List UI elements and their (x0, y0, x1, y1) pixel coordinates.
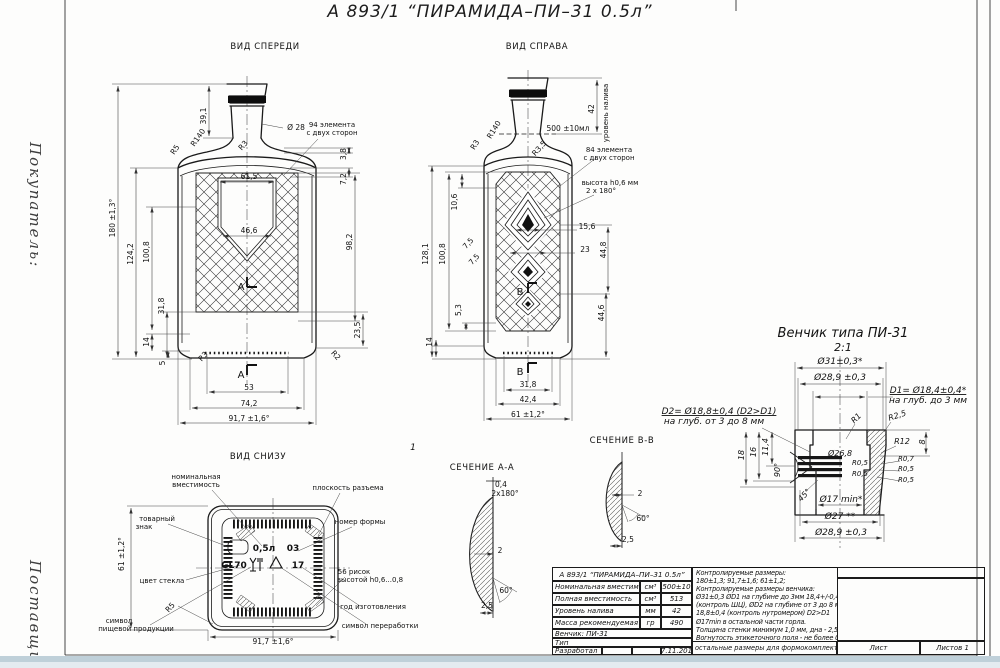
dim-label: 7,5 (461, 236, 476, 251)
dim-label: R2 (329, 349, 343, 363)
dim-label: 2,5 (481, 601, 493, 610)
dim-label: 3,8 (339, 148, 348, 160)
dim-label: R2,5 (887, 409, 907, 423)
dim-label: R5 (168, 143, 181, 157)
dim-label: 45° (796, 487, 812, 503)
dim-label: GL70 (221, 561, 247, 571)
spec-value: 490 (661, 617, 692, 629)
dim-label: с двух сторон (306, 129, 357, 137)
section-b: СЕЧЕНИЕ В-В 260°2,5 (590, 436, 655, 548)
dim-label: B (517, 287, 524, 298)
dim-label: с двух сторон (583, 154, 634, 162)
front-view: ВИД СПЕРЕДИ (108, 42, 368, 425)
finish-title: Венчик типа ПИ-31 (778, 326, 909, 341)
dim-label: 2x180° (491, 489, 519, 498)
dim-label: 31,8 (520, 380, 537, 389)
note-line: (контроль ШЦ), ØD2 на глубине от 3 до 8 … (696, 601, 837, 609)
developed-by-label: Разработал (552, 647, 602, 655)
dim-label: 31,8 (157, 297, 166, 314)
note-line: Контролируемые размеры: (696, 569, 837, 577)
drawing-sheet: А 893/1 “ПИРАМИДА–ПИ–31 0.5л” Покупатель… (0, 0, 1000, 668)
wall-section (606, 462, 622, 541)
empty-cell (837, 567, 985, 578)
knurl-band-right (314, 535, 323, 599)
dim-label: 2 (498, 546, 503, 555)
spec-unit: гр (640, 617, 661, 629)
dim-label: 0,5л (253, 544, 276, 554)
dim-label: 39,1 (199, 107, 208, 124)
dim-label: 61 ±1,2° (117, 537, 126, 571)
annotations: 1 (410, 443, 416, 453)
spec-unit: мм (640, 605, 661, 617)
dim-label: 42,4 (520, 395, 537, 404)
scan-edge-strip (0, 662, 1000, 668)
annotations: Ø31±0,3*Ø28,9 ±0,3D1= Ø18,4±0,4*на глуб.… (662, 356, 968, 538)
dim-label: 128,1 (421, 243, 430, 265)
dim-label: 8 (918, 439, 927, 444)
spec-value: 42 (661, 605, 692, 617)
dim-label: 42 (587, 104, 596, 114)
note-line: Ø17min в остальной части горла. (696, 618, 837, 626)
dim-label: товарный (139, 515, 175, 523)
dim-label: 18 (737, 450, 746, 460)
note-line: Ø31±0,3 ØD1 на глубине до 3мм 18,4+/-0,4 (696, 593, 837, 601)
dim-label: 84 элемента (586, 146, 632, 154)
dim-label: 56 рисок (338, 568, 370, 576)
dim-label: A (238, 282, 245, 293)
note-line: 18,8±0,4 (контроль нутромером) D2>D1 (696, 609, 837, 617)
dim-label: 23,5 (353, 321, 362, 338)
dim-label: 14 (142, 337, 151, 347)
dim-label: 91,7 ±1,6° (252, 637, 293, 646)
dim-label: Ø28,9 ±0,3 (813, 372, 866, 383)
signature-cell (632, 647, 661, 655)
dim-label: R12 (894, 437, 910, 446)
recycle-symbol (270, 557, 282, 568)
dim-label: год изготовления (340, 603, 406, 611)
dim-label: A (238, 370, 245, 381)
spec-unit: см³ (640, 593, 661, 605)
note-line: Толщина стенки минимум 1,0 мм, дна - 2,5… (696, 626, 837, 634)
dim-label: 5 (158, 360, 167, 365)
food-contact-symbol (250, 558, 262, 571)
dim-label: R3,5 (530, 139, 548, 158)
dim-label: 2 (638, 489, 643, 498)
dim-label: 90° (773, 463, 782, 477)
spec-value: 513 (661, 593, 692, 605)
dim-label: 1 (410, 443, 416, 453)
dim-label: 91,7 ±1,6° (228, 414, 269, 423)
empty-cell (837, 578, 985, 641)
right-view: ВИД СПРАВА (421, 42, 638, 421)
spec-name: Уровень налива (552, 605, 640, 617)
dim-label: цвет стекла (140, 577, 185, 585)
dim-label: R0,7 (898, 455, 915, 463)
spec-unit: см³ (640, 581, 661, 593)
dim-label: 44,6 (597, 304, 606, 321)
dim-label: 94 элемента (309, 121, 355, 129)
dim-label: R140 (485, 119, 503, 141)
dim-label: 60° (499, 586, 513, 595)
finish-detail: Венчик типа ПИ-31 2:1 (662, 326, 968, 548)
dim-label: 60° (636, 514, 650, 523)
dim-label: плоскость разъема (312, 484, 383, 492)
dim-label: 100,8 (438, 243, 447, 265)
dim-label: на глуб. до 3 мм (889, 396, 967, 406)
dim-label: 180 ±1,3° (108, 198, 117, 237)
dim-label: 23 (580, 245, 590, 254)
sheets-count-label: Листов 1 (920, 641, 985, 655)
spec-name: Полная вместимость (552, 593, 640, 605)
dim-label: 11,4 (761, 438, 770, 456)
dim-label: 0,4 (495, 480, 507, 489)
date-cell: 17.11.2017 (661, 647, 692, 655)
dim-label: 2 x 180° (586, 187, 616, 195)
dim-label: R3 (468, 138, 481, 151)
dim-label: номинальная (171, 473, 220, 481)
dim-label: R0,5 (852, 459, 869, 467)
dim-label: 61 ±1,2° (511, 410, 545, 419)
dim-label: Ø17 min* (819, 494, 863, 505)
dim-label: 53 (244, 383, 254, 392)
view-title-section-b: СЕЧЕНИЕ В-В (590, 436, 655, 446)
dim-label: знак (136, 523, 153, 531)
view-title-right: ВИД СПРАВА (506, 42, 568, 52)
dim-label: 7,2 (339, 173, 348, 185)
dim-label: R3 (236, 138, 250, 152)
dim-label: 15,6 (579, 222, 596, 231)
dim-label: номер формы (335, 518, 386, 526)
dim-label: Ø28,9 ±0,3 (814, 527, 867, 538)
dim-label: R1 (849, 411, 863, 425)
dim-label: символ переработки (342, 622, 419, 630)
dim-label: R3 (196, 349, 210, 363)
control-notes: Контролируемые размеры: 180±1,3; 91,7±1,… (692, 567, 837, 641)
dim-label: B (517, 367, 524, 378)
finish-scale: 2:1 (834, 341, 852, 354)
dim-label: высота h0,6 мм (582, 179, 639, 187)
type-row: Тип (552, 638, 692, 647)
dim-label: Ø26,8 (827, 448, 852, 458)
view-title-section-a: СЕЧЕНИЕ А-А (450, 463, 515, 473)
knurl-band-bottom (233, 608, 313, 617)
note-footer: остальные размеры для формокомплекта (692, 641, 837, 655)
dim-label: 16 (749, 447, 758, 457)
dim-label: R0,5 (852, 470, 869, 478)
dim-label: вместимость (172, 481, 220, 489)
dim-label: 500 ±10мл (547, 124, 590, 133)
dim-label: пищевой продукции (98, 625, 174, 633)
dim-label: 03 (287, 544, 300, 554)
dim-label: D1= Ø18,4±0,4* (890, 385, 967, 396)
dim-label: Ø31±0,3* (817, 356, 863, 367)
dim-label: R0,5 (898, 465, 915, 473)
misc-marks: 1 (410, 443, 416, 453)
cap-band (509, 90, 547, 97)
title-block-header: А 893/1 “ПИРАМИДА–ПИ–31 0.5л” (552, 567, 692, 581)
dim-label: 61,5 (241, 172, 258, 181)
dim-label: R140 (189, 127, 208, 148)
dim-label: высотой h0,6...0,8 (337, 576, 403, 584)
signature-cell (602, 647, 632, 655)
dim-label: 5,3 (454, 304, 463, 316)
dim-label: 44,8 (599, 241, 608, 258)
dim-label: D2= Ø18,8±0,4 (D2>D1) (662, 406, 777, 417)
dim-label: 10,6 (450, 193, 459, 210)
sheet-label: Лист (837, 641, 920, 655)
dim-label: Ø 28 (287, 123, 305, 132)
cap-band (228, 96, 266, 103)
dim-label: Ø27 ** (824, 511, 856, 522)
dim-label: символ (106, 617, 133, 625)
note-line: Вогнутость этикеточного поля - не более … (696, 634, 837, 641)
finish-type-row: Венчик: ПИ-31 (552, 629, 692, 638)
view-title-bottom: ВИД СНИЗУ (230, 452, 286, 462)
dim-label: 98,2 (345, 233, 354, 250)
view-title-front: ВИД СПЕРЕДИ (230, 42, 299, 52)
note-line: Контролируемые размеры венчика: (696, 585, 837, 593)
dim-label: 100,8 (142, 241, 151, 263)
dim-label: 124,2 (126, 243, 135, 265)
thread-band (798, 456, 842, 477)
dim-label: 74,2 (241, 399, 258, 408)
dim-label: уровень налива (602, 84, 610, 143)
dim-label: 17 (292, 561, 305, 571)
spec-name: Масса рекомендуемая (552, 617, 640, 629)
spec-name: Номинальная вместимость (552, 581, 640, 593)
dim-label: 46,6 (241, 226, 258, 235)
note-line: 180±1,3; 91,7±1,6; 61±1,2; (696, 577, 837, 585)
dim-label: R0,5 (898, 476, 915, 484)
dim-label: на глуб. от 3 до 8 мм (664, 417, 765, 427)
dim-label: R5 (163, 600, 177, 614)
bottom-view: ВИД СНИЗУ номинальнаявмест (98, 452, 418, 646)
dim-label: 7,5 (467, 252, 482, 267)
spec-value: 500±10 (661, 581, 692, 593)
dim-label: 14 (425, 337, 434, 347)
section-a: СЕЧЕНИЕ А-А 0,42x180°260°2,5 (450, 463, 519, 618)
dim-label: 2,5 (622, 535, 634, 544)
